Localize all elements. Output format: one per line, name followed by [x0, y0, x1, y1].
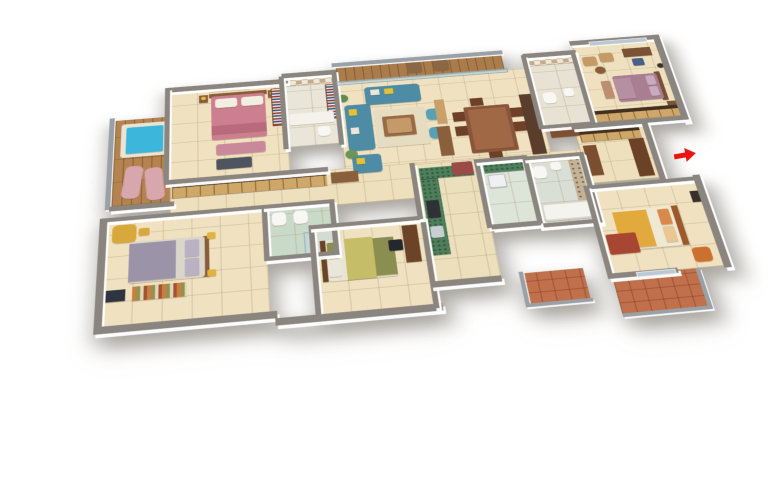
pillow	[185, 258, 200, 277]
dining-chair	[469, 98, 483, 107]
wash-basin	[563, 88, 575, 97]
fridge	[451, 161, 474, 176]
desk-chair	[631, 58, 645, 66]
cushion	[370, 89, 380, 95]
dining-chair	[452, 112, 466, 122]
jacuzzi-water	[126, 125, 164, 154]
cushion	[356, 158, 365, 165]
pillow	[185, 239, 200, 257]
floorplan-render	[0, 0, 780, 490]
lounge-chair	[144, 166, 165, 201]
cabinet	[331, 170, 359, 183]
armchair	[581, 56, 598, 66]
pillow	[328, 260, 342, 278]
blanket	[128, 240, 176, 282]
washing-machine	[487, 174, 508, 189]
cushion	[348, 109, 357, 116]
wicker-chair	[405, 62, 422, 74]
ottoman	[139, 228, 150, 236]
armchair	[112, 224, 137, 244]
wash-basin	[549, 161, 561, 170]
toilet	[532, 166, 548, 179]
apartment-plan	[102, 44, 758, 388]
sink	[430, 225, 445, 238]
desk	[104, 289, 125, 302]
rug	[605, 232, 641, 255]
cushion	[384, 88, 394, 94]
desk-chair	[388, 239, 404, 251]
pillow	[215, 98, 237, 109]
armchair	[598, 52, 615, 62]
wicker-chair	[432, 60, 449, 72]
toilet	[542, 92, 558, 104]
hob	[426, 200, 442, 219]
stool	[207, 232, 216, 239]
toilet	[318, 125, 331, 136]
scene-3d	[0, 0, 780, 490]
pillow	[241, 96, 263, 107]
cushion	[351, 127, 360, 134]
stool	[207, 269, 216, 277]
coffee-table-top	[386, 117, 412, 133]
toilet	[272, 212, 287, 226]
toilet	[293, 210, 308, 224]
dining-chair	[455, 126, 469, 136]
